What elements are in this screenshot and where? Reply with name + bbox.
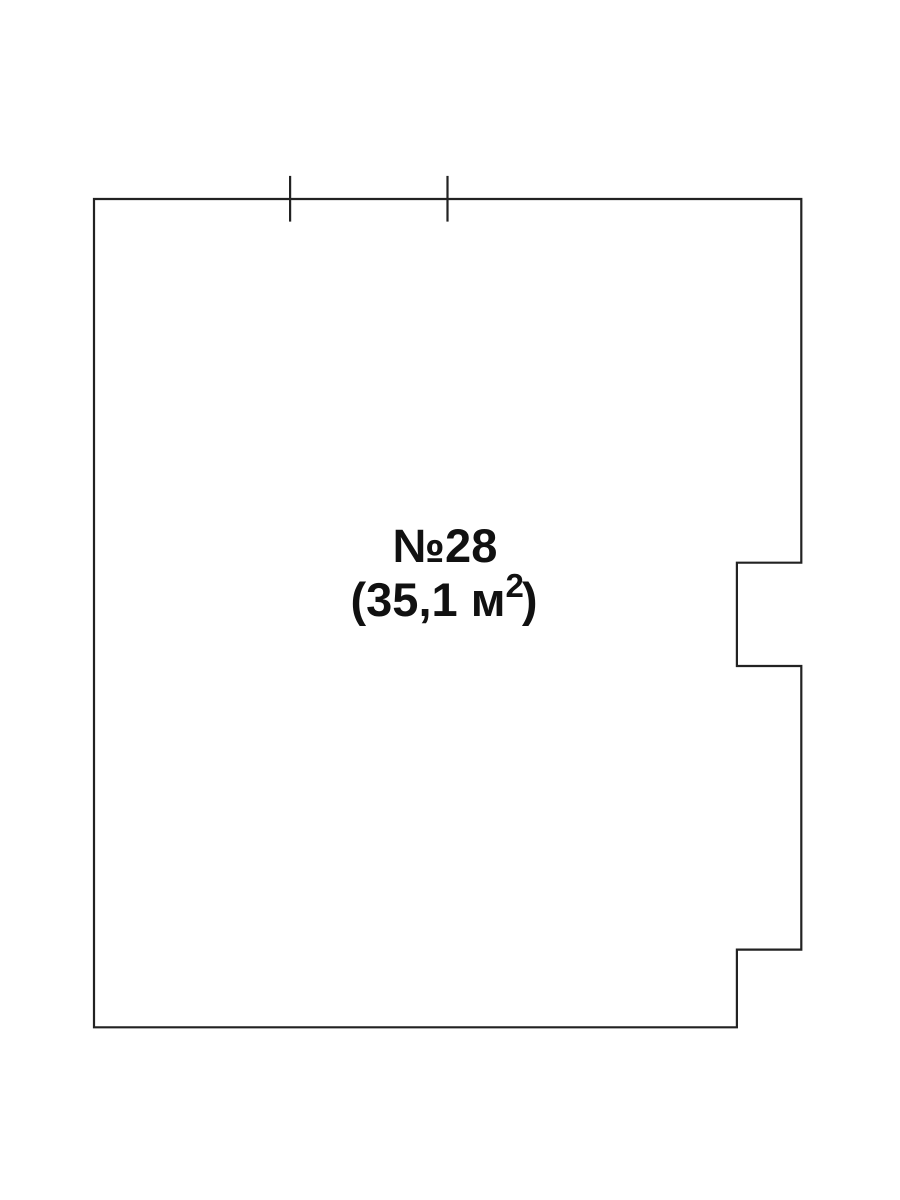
svg-text:№28: №28 bbox=[393, 519, 498, 572]
